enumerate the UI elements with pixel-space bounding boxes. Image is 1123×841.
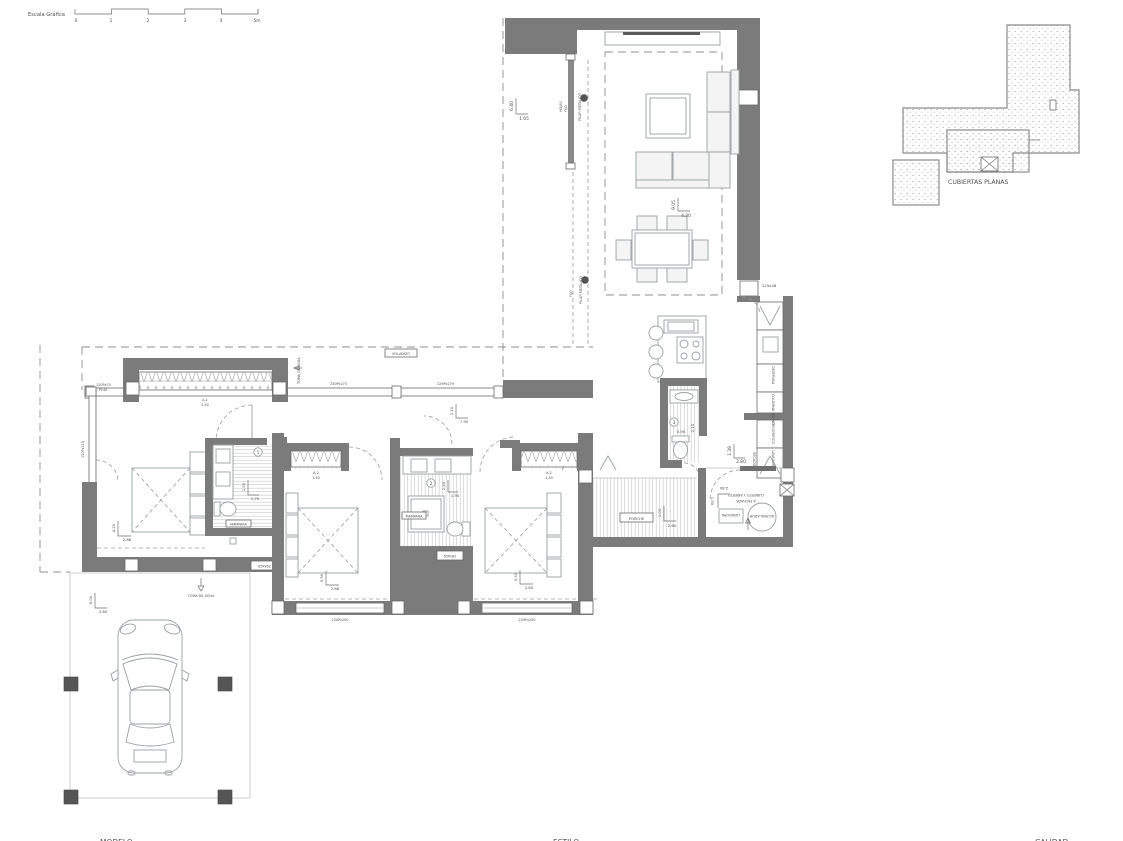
bath2-screen-box: MAMPARA	[402, 512, 426, 519]
bath2-toilet	[447, 522, 470, 536]
bed2-window-code: A-2	[313, 471, 319, 475]
roof-plan: CUBIERTAS PLANAS	[893, 25, 1079, 205]
scale-tick-4: 4	[220, 18, 223, 24]
bed3-dim-v: 3.50	[513, 572, 518, 581]
wc3-basin	[670, 390, 698, 403]
bed3-dim-h: 2.80	[525, 585, 534, 590]
living-dim-v: 6.40	[509, 101, 515, 111]
bed3-bottom-window-label: 230Px200	[519, 618, 536, 622]
tv-console	[605, 32, 720, 45]
master-dim-v: 4.20	[111, 523, 116, 532]
bedroom3-window	[521, 451, 577, 467]
kitchen-island	[649, 316, 706, 382]
tv-icon	[623, 32, 700, 35]
glass-label-1a: HOJAS	[559, 101, 563, 112]
bath1-dim-h: 1.70	[251, 496, 260, 501]
master-window-code: A-1	[202, 398, 208, 402]
dining-dim-h: 4.30	[681, 213, 691, 219]
wc3-dim-h: 0.90	[677, 429, 686, 434]
vent-grille	[780, 484, 794, 496]
glass-label-2: FIJO	[569, 290, 573, 297]
wc3-number: 3	[673, 420, 676, 426]
wc3-dim-v: 2.15	[690, 423, 695, 432]
carport-water-label: TOMA DE AGUA	[187, 594, 215, 598]
scale-tick-1: 1	[110, 18, 113, 24]
bed2-door-arc	[349, 447, 382, 480]
master-bed	[132, 452, 206, 535]
bath1-dim-v: 1.50	[241, 482, 246, 491]
bath1-screen-box: MAMPARA	[226, 520, 251, 527]
bath2-dim-h: 1.90	[451, 493, 460, 498]
cabinet-label-3: FRIGORIFICO	[771, 422, 775, 444]
cabinet-label-2: COLUMNA HORNO	[771, 394, 775, 425]
roof-skylight	[981, 157, 998, 171]
stool-1	[649, 326, 663, 340]
carport: 6.00 3.80 TOMA DE AGUA	[64, 573, 250, 804]
master-window	[139, 372, 272, 390]
bath1-vanity	[213, 445, 233, 499]
master-side-label-1: 120Px70	[96, 383, 111, 387]
kitchen-dim-h: 2.80	[736, 459, 746, 465]
laundry-dim-h: 2.80	[719, 486, 728, 491]
wc3-toilet	[672, 436, 689, 459]
scale-tick-0: 0	[75, 18, 78, 24]
bedroom3-bed	[485, 493, 561, 577]
coffee-table	[646, 94, 690, 138]
master-window-size: 2.40	[201, 403, 209, 407]
bath1-toilet	[214, 502, 236, 516]
master-dim-h: 2.88	[123, 537, 132, 542]
graphic-scale-bar: Escala Gráfica 0 1 2 3 4 5m	[28, 9, 261, 24]
water-heater-label: ACUMULADOR	[749, 514, 774, 518]
master-side-label-2: PL40	[99, 388, 107, 392]
scale-tick-3: 3	[184, 18, 187, 24]
laundry-dim-v: 1.50	[710, 497, 715, 506]
entry-size-label: 125x48	[762, 283, 777, 288]
entry-door	[740, 281, 758, 296]
bed2-dim-v: 3.50	[319, 573, 324, 582]
carport-dim-h: 3.80	[99, 609, 108, 614]
pillar2-label: PILAR METÁLICO	[578, 276, 583, 304]
sofa-set	[636, 70, 739, 188]
sliding-door	[568, 58, 574, 164]
living-dim-h: 1.65	[519, 116, 529, 122]
master-glass-door	[89, 390, 96, 484]
hall-dim-v: 1.10	[449, 406, 454, 415]
roof-vent	[1050, 100, 1056, 110]
car-icon	[111, 620, 189, 775]
bottom-wall-band: 230Px200 230Px200	[272, 601, 593, 622]
living-glass-wall: PILAR METÁLICO PILAR METÁLICO HOJAS FIJO…	[559, 54, 588, 304]
hall-dim-h: 7.90	[460, 419, 469, 424]
bed3-window-code: A-2	[546, 471, 552, 475]
master-glass-label: 130Px115	[81, 441, 85, 458]
stool-2	[649, 345, 663, 359]
kitchen-dim-v: 1.38	[727, 446, 733, 456]
master-door-arc	[216, 405, 252, 441]
bathroom2: MAMPARA 2 2.40 1.90 65Px62	[390, 416, 473, 614]
dining-dim-v: 9.05	[671, 200, 677, 210]
bath2-dim-v: 2.40	[441, 481, 446, 490]
pillar1-label: PILAR METÁLICO	[577, 93, 582, 121]
roof-lower-left	[893, 160, 939, 205]
laundry-note-2: A FACHADA	[736, 499, 756, 503]
wc3: 3 2.15 0.90	[660, 378, 707, 479]
bed2-bottom-window-label: 230Px200	[332, 618, 349, 622]
laundry-door	[740, 466, 776, 471]
bath2-door-arc	[424, 416, 452, 444]
floor-plan-sheet: Escala Gráfica 0 1 2 3 4 5m CUBIERTAS PL…	[0, 0, 1123, 841]
hall-door-swing-2	[600, 456, 616, 470]
carport-dim-v: 6.00	[88, 595, 93, 604]
bedroom2-bed	[286, 493, 358, 577]
scale-tick-5: 5m	[253, 18, 260, 24]
bath1-box-label: MAMPARA	[230, 523, 248, 527]
bath2-box-label: MAMPARA	[406, 515, 424, 519]
bed3-window-size: 1.40	[545, 476, 553, 480]
front-window2-label: 229Px279	[437, 382, 454, 386]
dining-table	[616, 216, 708, 282]
bed2-dim-h: 2.88	[331, 586, 340, 591]
bath2-small-window-box: 65Px62	[437, 551, 463, 560]
roof-plan-label: CUBIERTAS PLANAS	[948, 179, 1009, 186]
porch-dim-v: 1.00	[657, 508, 662, 517]
porch-dim-h: 2.60	[668, 523, 677, 528]
toma-agua-front-label: TOMA DE AGUA	[297, 357, 301, 385]
bed2-window-size: 1.40	[312, 476, 320, 480]
bath2-vanity	[403, 456, 471, 474]
washer-label: LAVADORA	[721, 513, 740, 517]
bedroom2: A-2 1.40 3.50 2.88	[272, 433, 382, 615]
bath1-number: 1	[257, 450, 260, 456]
front-window1-label: 230Px275	[330, 382, 347, 386]
cabinet-label-1: DESPENSA	[771, 366, 775, 385]
bedroom3: A-2 1.40 3.50 2.80	[480, 433, 593, 614]
master-small-window-label: 65Px62	[258, 565, 271, 569]
voladizo-label: VOLADIZO	[392, 352, 410, 356]
bath2-small-window-label: 65Px62	[444, 555, 457, 559]
scale-tick-2: 2	[147, 18, 150, 24]
voladizo-label-box: VOLADIZO	[385, 349, 417, 357]
bath2-number: 2	[430, 481, 433, 487]
scale-bar-label: Escala Gráfica	[28, 11, 65, 18]
glass-label-1b: FIJO	[564, 105, 568, 112]
stool-3	[649, 364, 663, 378]
bedroom2-window	[291, 451, 341, 467]
laundry-note-1: CUBIERTO Y ABIERTO	[728, 493, 764, 497]
porch-label: PORCHE	[629, 516, 645, 521]
living-right-window	[739, 90, 758, 105]
floor-plan-drawing: Escala Gráfica 0 1 2 3 4 5m CUBIERTAS PL…	[0, 0, 1123, 841]
